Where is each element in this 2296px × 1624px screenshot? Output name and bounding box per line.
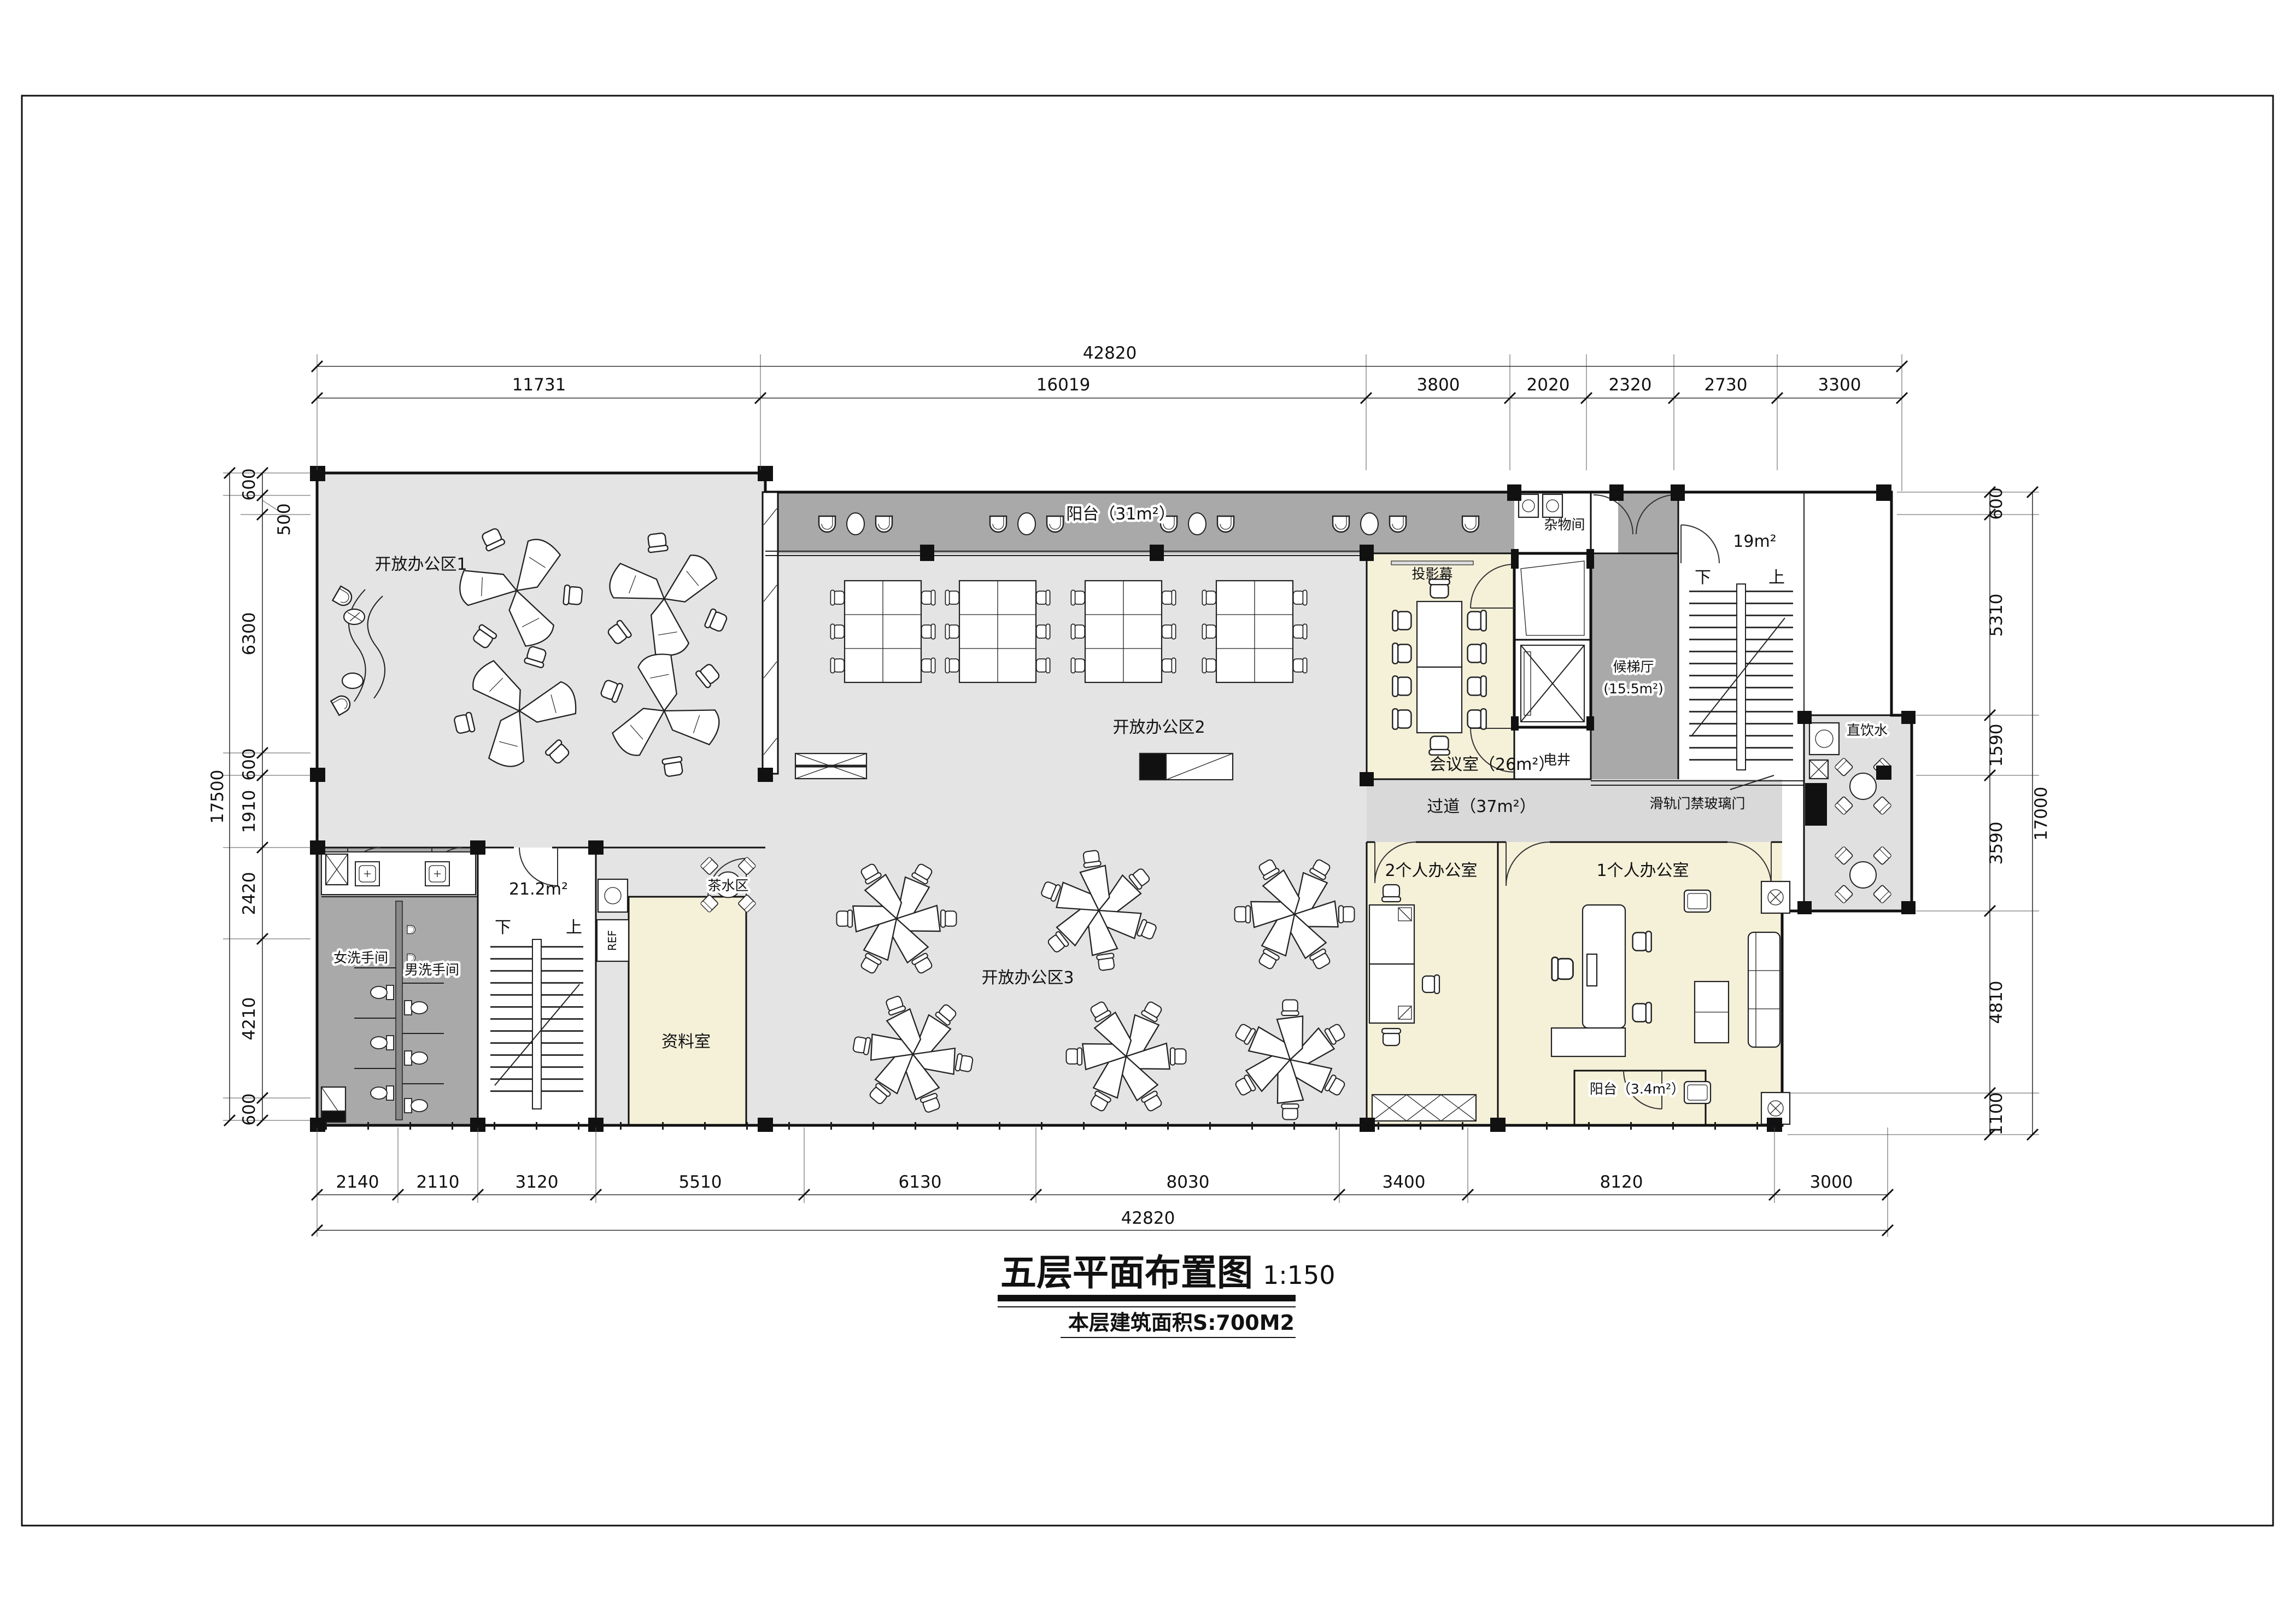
- label-open-office-3: 开放办公区3: [981, 968, 1074, 988]
- svg-text:600: 600: [239, 468, 259, 500]
- label-womens-restroom: 女洗手间: [333, 950, 388, 966]
- svg-text:2140: 2140: [336, 1172, 379, 1192]
- label-archive: 资料室: [661, 1032, 711, 1051]
- svg-text:1910: 1910: [239, 790, 259, 833]
- svg-text:1590: 1590: [1987, 724, 2006, 767]
- label-corridor: 过道（37m²）: [1427, 797, 1536, 816]
- svg-text:600: 600: [1987, 487, 2006, 519]
- svg-text:3590: 3590: [1987, 822, 2006, 865]
- title-block: 五层平面布置图 1:150 本层建筑面积S:700M2: [998, 1252, 1336, 1337]
- label-stair-up-left: 上: [566, 918, 582, 937]
- svg-text:4210: 4210: [239, 997, 259, 1041]
- svg-text:6130: 6130: [899, 1172, 942, 1192]
- drawing-scale: 1:150: [1263, 1260, 1336, 1290]
- svg-text:11731: 11731: [512, 375, 566, 395]
- drawing-title: 五层平面布置图: [1000, 1252, 1253, 1294]
- svg-text:2730: 2730: [1705, 375, 1748, 395]
- label-electrical-shaft: 电井: [1543, 752, 1571, 768]
- dim-top-total: 42820: [1083, 343, 1137, 363]
- label-sliding-door: 滑轨门禁玻璃门: [1649, 796, 1745, 811]
- label-stair-right-area: 19m²: [1733, 532, 1776, 551]
- svg-text:16019: 16019: [1036, 375, 1091, 395]
- svg-text:3300: 3300: [1818, 375, 1861, 395]
- drawing-subtitle: 本层建筑面积S:700M2: [1068, 1311, 1295, 1335]
- svg-text:2110: 2110: [417, 1172, 460, 1192]
- floor-plan-sheet: 开放办公区1 阳台（31m²） 开放办公区2 开放办公区3 投影幕 会议室（26…: [0, 0, 2296, 1624]
- label-storage: 杂物间: [1544, 517, 1585, 533]
- dim-left-total: 17500: [208, 770, 227, 824]
- svg-text:8120: 8120: [1600, 1172, 1643, 1192]
- label-elevator-lobby: 候梯厅: [1613, 659, 1654, 675]
- label-elevator-lobby-area: (15.5m²): [1603, 681, 1664, 697]
- label-meeting-room: 会议室（26m²）: [1430, 755, 1555, 774]
- label-projector-screen: 投影幕: [1411, 566, 1452, 582]
- label-fridge: REF: [606, 930, 619, 951]
- svg-text:2420: 2420: [239, 872, 259, 915]
- svg-text:3400: 3400: [1383, 1172, 1426, 1192]
- label-open-office-1: 开放办公区1: [374, 555, 467, 574]
- label-tea-area: 茶水区: [707, 878, 748, 893]
- svg-text:8030: 8030: [1167, 1172, 1210, 1192]
- title-underline: [998, 1295, 1296, 1301]
- label-balcony-top: 阳台（31m²）: [1066, 505, 1175, 524]
- svg-text:4810: 4810: [1987, 981, 2006, 1024]
- label-drinking-water: 直饮水: [1847, 722, 1888, 738]
- svg-text:6300: 6300: [239, 612, 259, 656]
- svg-text:500: 500: [274, 503, 294, 535]
- label-stair-up-right: 上: [1768, 568, 1785, 587]
- label-stair-down-left: 下: [495, 918, 511, 937]
- label-office-1p: 1个人办公室: [1596, 861, 1689, 880]
- dim-right-total: 17000: [2031, 787, 2051, 841]
- svg-text:3000: 3000: [1810, 1172, 1853, 1192]
- dim-bottom-total: 42820: [1121, 1208, 1175, 1228]
- label-stair-down-right: 下: [1695, 568, 1711, 587]
- svg-text:2320: 2320: [1609, 375, 1652, 395]
- svg-text:600: 600: [239, 1093, 259, 1125]
- svg-text:2020: 2020: [1527, 375, 1570, 395]
- svg-text:1100: 1100: [1987, 1093, 2006, 1136]
- svg-text:5310: 5310: [1987, 594, 2006, 637]
- svg-text:5510: 5510: [679, 1172, 722, 1192]
- svg-text:3800: 3800: [1417, 375, 1460, 395]
- label-stair-left-area: 21.2m²: [509, 880, 568, 899]
- svg-text:3120: 3120: [516, 1172, 559, 1192]
- label-office-2p: 2个人办公室: [1385, 861, 1477, 880]
- label-open-office-2: 开放办公区2: [1112, 718, 1205, 737]
- svg-text:600: 600: [239, 748, 259, 780]
- label-mens-restroom: 男洗手间: [405, 962, 459, 978]
- label-balcony-small: 阳台（3.4m²）: [1590, 1081, 1685, 1097]
